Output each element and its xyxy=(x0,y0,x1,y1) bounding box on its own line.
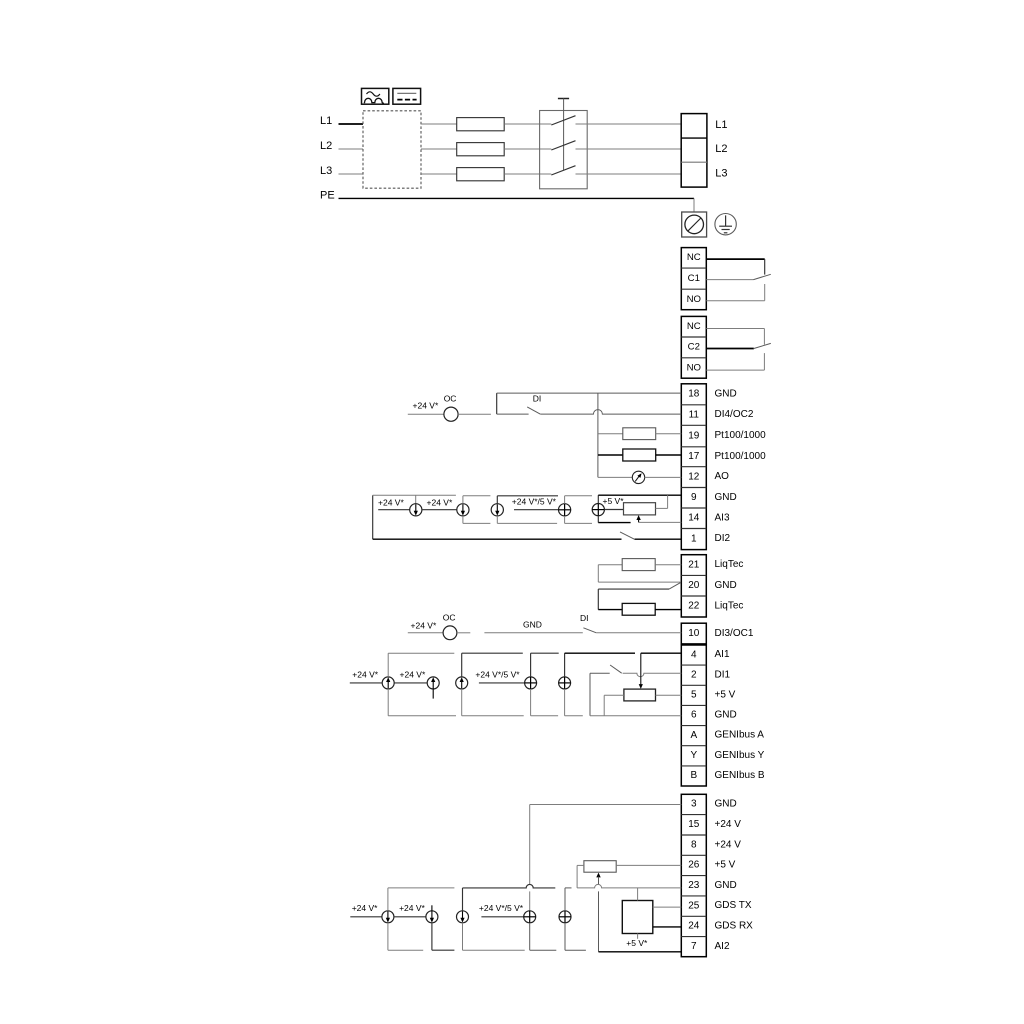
svg-text:GND: GND xyxy=(715,580,737,591)
svg-text:NC: NC xyxy=(687,321,701,332)
svg-text:GND: GND xyxy=(715,710,737,721)
svg-text:7: 7 xyxy=(691,941,697,952)
svg-text:+5 V: +5 V xyxy=(715,860,736,871)
svg-text:+24 V*: +24 V* xyxy=(399,903,425,913)
svg-text:+24 V: +24 V xyxy=(715,839,742,850)
svg-text:+24 V*/5 V*: +24 V*/5 V* xyxy=(479,903,524,913)
svg-text:DI1: DI1 xyxy=(715,669,731,680)
svg-text:+24 V*: +24 V* xyxy=(378,498,404,508)
svg-text:L1: L1 xyxy=(715,119,727,131)
svg-text:L3: L3 xyxy=(715,168,727,180)
svg-text:GDS RX: GDS RX xyxy=(715,921,754,932)
svg-text:23: 23 xyxy=(688,880,700,891)
svg-text:2: 2 xyxy=(691,669,697,680)
svg-text:17: 17 xyxy=(688,451,700,462)
svg-text:L2: L2 xyxy=(320,140,332,152)
svg-text:+24 V*: +24 V* xyxy=(352,903,378,913)
svg-text:L2: L2 xyxy=(715,143,727,155)
svg-text:26: 26 xyxy=(688,860,700,871)
svg-text:AI1: AI1 xyxy=(715,649,730,660)
svg-text:12: 12 xyxy=(688,471,700,482)
svg-text:GND: GND xyxy=(715,799,737,810)
svg-text:A: A xyxy=(690,730,697,741)
svg-text:15: 15 xyxy=(688,819,700,830)
svg-text:+24 V*: +24 V* xyxy=(400,669,426,679)
svg-text:+24 V*: +24 V* xyxy=(427,498,453,508)
svg-text:DI: DI xyxy=(580,613,589,623)
svg-text:AI3: AI3 xyxy=(715,512,730,523)
svg-text:3: 3 xyxy=(691,799,697,810)
svg-text:GND: GND xyxy=(715,388,737,399)
svg-text:11: 11 xyxy=(689,409,700,420)
svg-text:+24 V*: +24 V* xyxy=(413,401,439,411)
svg-text:25: 25 xyxy=(688,900,700,911)
svg-text:Pt100/1000: Pt100/1000 xyxy=(715,451,767,462)
svg-text:4: 4 xyxy=(691,649,697,660)
svg-text:GENIbus A: GENIbus A xyxy=(715,730,765,741)
svg-text:14: 14 xyxy=(688,513,700,524)
svg-text:GDS TX: GDS TX xyxy=(715,900,752,911)
svg-text:DI2: DI2 xyxy=(715,533,731,544)
svg-text:B: B xyxy=(690,770,697,781)
svg-text:5: 5 xyxy=(691,690,697,701)
svg-text:L3: L3 xyxy=(320,165,332,177)
svg-text:AI2: AI2 xyxy=(715,941,730,952)
svg-text:NC: NC xyxy=(687,252,701,263)
svg-text:LiqTec: LiqTec xyxy=(715,601,744,612)
svg-text:1: 1 xyxy=(691,533,697,544)
svg-text:+24 V*: +24 V* xyxy=(411,621,437,631)
svg-text:DI3/OC1: DI3/OC1 xyxy=(715,628,754,639)
svg-text:DI: DI xyxy=(533,394,542,404)
svg-text:NO: NO xyxy=(687,294,701,305)
svg-text:6: 6 xyxy=(691,710,697,721)
svg-text:22: 22 xyxy=(688,601,700,612)
svg-text:+24 V: +24 V xyxy=(715,819,742,830)
svg-text:9: 9 xyxy=(691,492,697,503)
svg-text:OC: OC xyxy=(443,613,456,623)
svg-text:NO: NO xyxy=(687,363,701,374)
svg-text:DI4/OC2: DI4/OC2 xyxy=(715,409,754,420)
svg-text:AO: AO xyxy=(715,471,730,482)
svg-text:OC: OC xyxy=(444,394,457,404)
svg-text:PE: PE xyxy=(320,189,335,201)
svg-text:+24 V*: +24 V* xyxy=(352,669,378,679)
svg-text:24: 24 xyxy=(688,921,700,932)
svg-text:C2: C2 xyxy=(688,342,700,353)
svg-text:L1: L1 xyxy=(320,115,332,127)
svg-text:+5 V: +5 V xyxy=(715,689,736,700)
svg-text:GND: GND xyxy=(523,620,542,630)
svg-text:+24 V*/5 V*: +24 V*/5 V* xyxy=(512,497,557,507)
svg-text:C1: C1 xyxy=(688,273,700,284)
svg-text:19: 19 xyxy=(688,430,700,441)
svg-text:21: 21 xyxy=(688,559,700,570)
svg-text:GENIbus Y: GENIbus Y xyxy=(715,750,765,761)
svg-text:Y: Y xyxy=(690,750,697,761)
svg-text:LiqTec: LiqTec xyxy=(715,559,744,570)
svg-text:20: 20 xyxy=(688,580,700,591)
svg-text:GND: GND xyxy=(715,880,737,891)
svg-text:8: 8 xyxy=(691,839,697,850)
svg-text:+5 V*: +5 V* xyxy=(626,938,648,948)
svg-text:10: 10 xyxy=(688,628,700,639)
svg-text:+24 V*/5 V*: +24 V*/5 V* xyxy=(475,669,520,679)
svg-text:18: 18 xyxy=(688,389,700,400)
svg-text:GND: GND xyxy=(715,492,737,503)
svg-text:GENIbus B: GENIbus B xyxy=(715,770,765,781)
svg-text:+5 V*: +5 V* xyxy=(603,496,625,506)
svg-text:Pt100/1000: Pt100/1000 xyxy=(715,430,767,441)
